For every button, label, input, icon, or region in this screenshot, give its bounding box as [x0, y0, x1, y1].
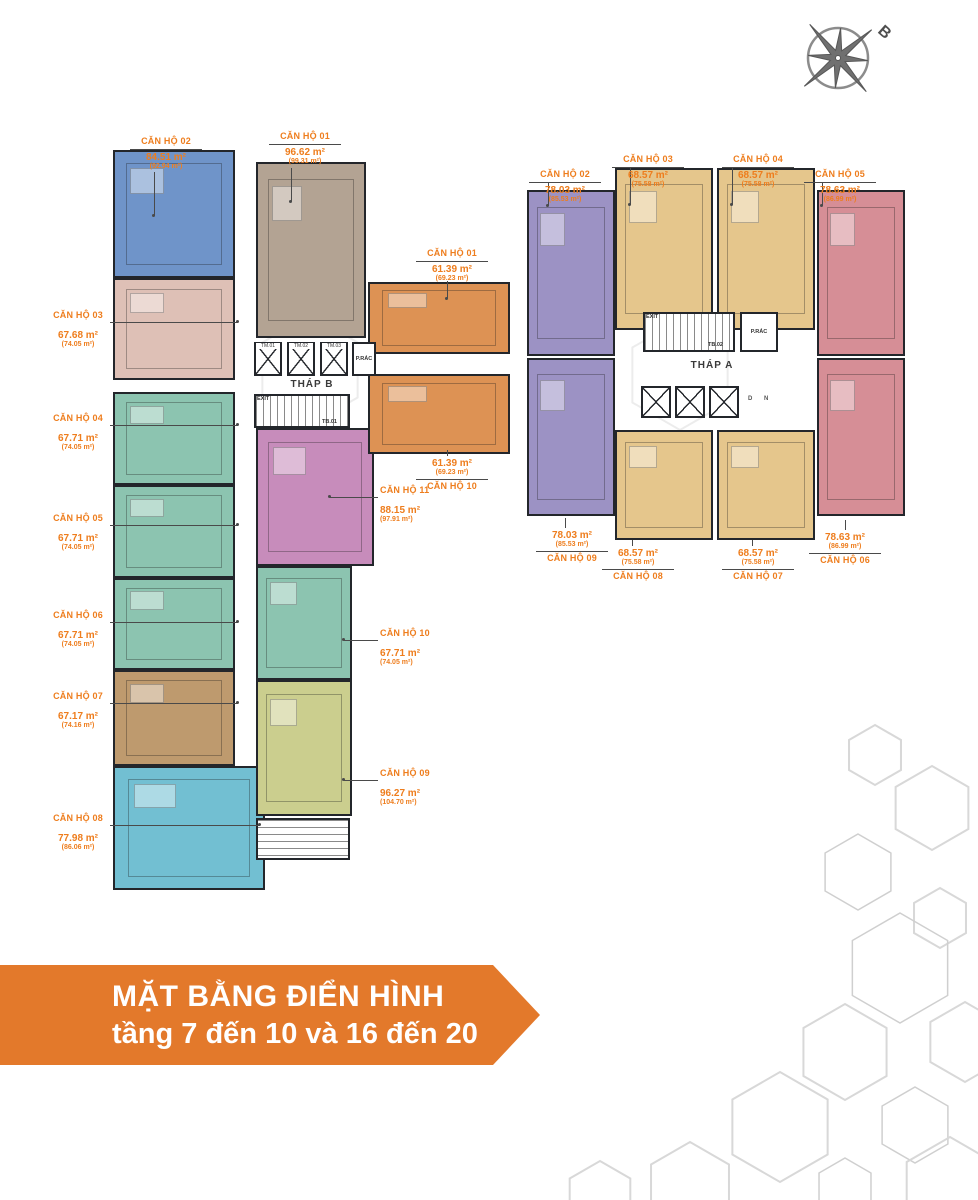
core-marker-d: D — [748, 396, 752, 402]
apartment-b07 — [113, 670, 235, 766]
label-apartment-b01: CĂN HỘ 01 96.62 m²(99.31 m²) — [260, 132, 350, 166]
apartment-a08 — [615, 430, 713, 540]
title-banner: MẶT BẰNG ĐIỂN HÌNH tầng 7 đến 10 và 16 đ… — [0, 965, 540, 1065]
label-apartment-a03: CĂN HỘ 03 68.57 m²(75.58 m²) — [603, 155, 693, 189]
apartment-b05 — [113, 485, 235, 578]
label-apartment-a06: 78.63 m²(86.99 m²) CĂN HỘ 06 — [800, 530, 890, 566]
exit-label-b: EXIT — [257, 396, 269, 402]
elevator-shaft: TM.02 — [287, 342, 315, 376]
apartment-b09 — [256, 680, 352, 816]
floor-plan-page: B TM.01 TM.02 TM.03 P.RÁC THÁP B EXIT TB… — [0, 0, 978, 1200]
apartment-a06 — [817, 358, 905, 516]
apartment-a09 — [527, 358, 615, 516]
banner-subtitle: tầng 7 đến 10 và 16 đến 20 — [112, 1018, 540, 1051]
trash-room-a: P.RÁC — [740, 312, 778, 352]
apartment-b10 — [256, 566, 352, 680]
elevator-shaft — [709, 386, 739, 418]
elevator-shaft — [641, 386, 671, 418]
label-apartment-a02: CĂN HỘ 02 78.03 m²(85.53 m²) — [520, 170, 610, 204]
compass-north-letter: B — [874, 22, 894, 42]
label-apartment-b02: CĂN HỘ 02 84.51 m²(92.94 m²) — [121, 137, 211, 171]
label-apartment-b10: CĂN HỘ 10 67.71 m²(74.05 m²) — [380, 629, 450, 667]
core-marker-n: N — [764, 396, 768, 402]
trash-room-b: P.RÁC — [352, 342, 376, 376]
apartment-b03 — [113, 278, 235, 380]
label-apartment-b07: CĂN HỘ 07 67.17 m²(74.16 m²) — [46, 692, 110, 730]
stair-id-b: TB.01 — [322, 419, 337, 425]
label-apartment-c01: CĂN HỘ 01 61.39 m²(69.23 m²) — [407, 249, 497, 283]
apartment-a05 — [817, 190, 905, 356]
apartment-c10 — [368, 374, 510, 454]
label-apartment-b03: CĂN HỘ 03 67.68 m²(74.05 m²) — [46, 311, 110, 349]
label-apartment-a07: 68.57 m²(75.58 m²) CĂN HỘ 07 — [713, 546, 803, 582]
label-apartment-a04: CĂN HỘ 04 68.57 m²(75.58 m²) — [713, 155, 803, 189]
exit-label-a: EXIT — [646, 314, 658, 320]
label-apartment-a08: 68.57 m²(75.58 m²) CĂN HỘ 08 — [593, 546, 683, 582]
label-apartment-a05: CĂN HỘ 05 78.63 m²(86.99 m²) — [795, 170, 885, 204]
stairwell-b-lower — [256, 818, 350, 860]
apartment-a02 — [527, 190, 615, 356]
compass-icon: B — [780, 6, 896, 110]
apartment-b01 — [256, 162, 366, 338]
elevator-shaft — [675, 386, 705, 418]
apartment-a07 — [717, 430, 815, 540]
stair-id-a: TB.02 — [708, 342, 723, 348]
apartment-b06 — [113, 578, 235, 670]
apartment-c01 — [368, 282, 510, 354]
banner-title: MẶT BẰNG ĐIỂN HÌNH — [112, 980, 540, 1014]
elevator-shaft: TM.03 — [320, 342, 348, 376]
label-apartment-b06: CĂN HỘ 06 67.71 m²(74.05 m²) — [46, 611, 110, 649]
label-apartment-b09: CĂN HỘ 09 96.27 m²(104.70 m²) — [380, 769, 450, 807]
label-apartment-b05: CĂN HỘ 05 67.71 m²(74.05 m²) — [46, 514, 110, 552]
elevator-shaft: TM.01 — [254, 342, 282, 376]
label-apartment-b04: CĂN HỘ 04 67.71 m²(74.05 m²) — [46, 414, 110, 452]
label-apartment-b11: CĂN HỘ 11 88.15 m²(97.91 m²) — [380, 486, 450, 524]
tower-a-label: THÁP A — [662, 360, 762, 371]
tower-b-label: THÁP B — [262, 379, 362, 390]
apartment-b04 — [113, 392, 235, 485]
hexagon-pattern — [560, 690, 978, 1200]
apartment-b08 — [113, 766, 265, 890]
label-apartment-b08: CĂN HỘ 08 77.98 m²(86.06 m²) — [46, 814, 110, 852]
